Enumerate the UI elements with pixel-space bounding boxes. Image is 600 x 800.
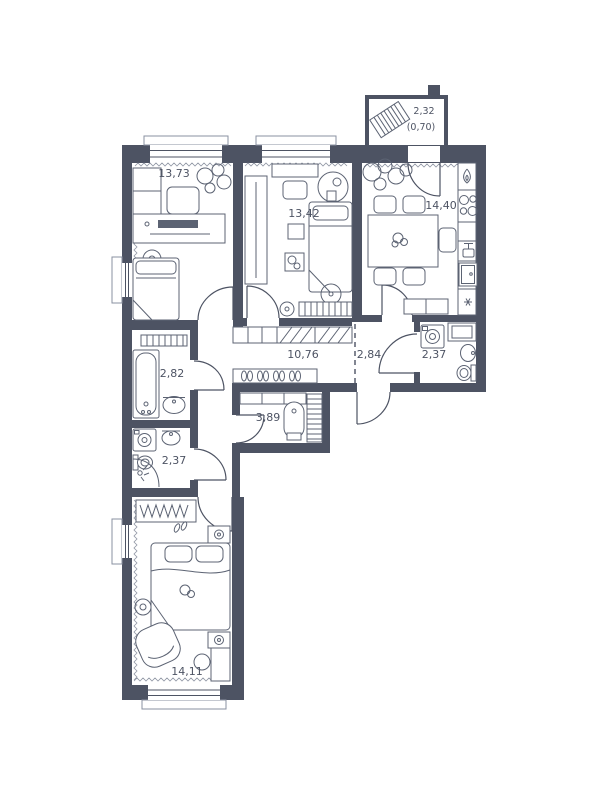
- wall-entry-side: [390, 383, 476, 392]
- corridor: 10,76: [233, 327, 352, 383]
- door-bathroom-left: [194, 361, 224, 390]
- storage: 3,89: [240, 393, 322, 442]
- washing-machine-icon: [133, 429, 156, 451]
- slippers-icon: [173, 521, 188, 533]
- cabinet-icon: [233, 327, 277, 343]
- door-wc: [194, 449, 226, 480]
- wall-kitchen-bottom: [412, 315, 476, 322]
- door-room1: [198, 287, 233, 320]
- wall-room1-room2: [233, 163, 243, 330]
- wall-room2-bottom: [279, 318, 352, 326]
- wall-corridor-bottom: [232, 383, 357, 392]
- side-table-icon: [285, 253, 304, 271]
- zigzag-line: [134, 500, 137, 680]
- nightstand-icon: [288, 224, 304, 239]
- floor-plan: 13,73 13,42: [0, 0, 600, 800]
- door-balcony: [408, 163, 440, 196]
- plant-icon: [197, 164, 231, 193]
- kitchen: 14,40: [363, 159, 477, 315]
- hallway: 2,84: [357, 348, 382, 361]
- area-label-bedroom: 14,11: [171, 665, 203, 678]
- balcony: 2,32 (0,70): [370, 102, 436, 138]
- window-sill: [142, 700, 226, 709]
- boiler-icon: [284, 402, 304, 440]
- wall-storage-right: [322, 392, 330, 443]
- wall-left: [122, 163, 132, 685]
- nightstand-icon: [208, 526, 230, 543]
- bathtub-icon: [133, 350, 159, 418]
- closet-rod-icon: [299, 302, 352, 316]
- bed-icon: [133, 258, 179, 320]
- chair-icon: [403, 268, 425, 285]
- pillow-icon: [136, 261, 176, 274]
- balcony-bench-icon: [370, 102, 410, 138]
- balcony-wall-left: [365, 95, 369, 145]
- pillow-icon: [165, 546, 192, 562]
- sink-icon: [163, 397, 185, 414]
- window-sill: [144, 136, 228, 145]
- zigzag-line: [364, 164, 472, 167]
- sink-icon: [461, 345, 476, 362]
- area-label-kitchen: 14,40: [425, 199, 457, 212]
- wall-bath-wc: [132, 420, 198, 428]
- shoe-shelf-icon: [233, 369, 317, 383]
- towel-radiator-icon: [141, 335, 187, 346]
- door-bathroom-right: [379, 334, 417, 373]
- bathroom-left: 2,82: [133, 335, 187, 418]
- bed-icon: [151, 543, 230, 630]
- chair-icon: [403, 196, 425, 213]
- wall-storage-bottom: [232, 443, 330, 453]
- wall-room1-bottom: [132, 320, 198, 330]
- monitor-icon: [158, 220, 198, 228]
- chair-icon: [374, 268, 396, 285]
- coat-rack-icon: [136, 500, 196, 522]
- area-label-bathroom-right: 2,37: [422, 348, 447, 361]
- ceiling-light-icon: [280, 302, 294, 316]
- balcony-wall-right: [444, 95, 448, 145]
- washing-machine-icon: [421, 325, 444, 348]
- plant-icon: [363, 159, 412, 190]
- chair-icon: [167, 187, 199, 214]
- hanging-chair-icon: [318, 172, 348, 202]
- ladder-icon: [307, 394, 322, 442]
- area-label-storage: 3,89: [256, 411, 281, 424]
- cabinet-icon: [404, 299, 448, 314]
- window-sill: [112, 257, 122, 303]
- ceiling-light-icon: [135, 599, 151, 615]
- area-label-hallway: 2,84: [357, 348, 382, 361]
- wall-bedroom-right: [232, 497, 244, 685]
- area-label-room2: 13,42: [288, 207, 320, 220]
- kitchen-counter: [458, 163, 476, 315]
- bedroom: 14,11: [132, 500, 230, 681]
- chair-icon: [439, 228, 456, 252]
- room-13-73: 13,73: [133, 164, 231, 320]
- window-sill: [112, 519, 122, 564]
- cabinet-icon: [448, 323, 476, 341]
- area-label-balcony: 2,32: [413, 106, 434, 117]
- window-sill: [256, 136, 336, 145]
- desk-icon: [133, 214, 225, 243]
- nightstand-icon: [208, 632, 230, 648]
- stool-icon: [283, 181, 307, 199]
- wall-room2-kitchen: [352, 163, 362, 322]
- area-label-corridor: 10,76: [287, 348, 319, 361]
- area-label-bathroom-left: 2,82: [160, 367, 185, 380]
- balcony-wall-top: [365, 95, 448, 99]
- oven-icon: [459, 263, 477, 286]
- toilet-icon: [133, 455, 153, 470]
- chair-icon: [374, 196, 396, 213]
- pillow-icon: [196, 546, 223, 562]
- area-label-balcony-weighted: (0,70): [407, 122, 436, 133]
- dining-table-icon: [368, 215, 438, 267]
- wall-wc-bottom: [132, 488, 198, 497]
- toilet-icon: [457, 365, 476, 381]
- area-label-wc: 2,37: [162, 454, 187, 467]
- door-entry: [357, 392, 390, 424]
- sink-icon: [162, 431, 180, 445]
- door-room2: [247, 286, 279, 318]
- bathroom-right: 2,37: [421, 323, 476, 381]
- shoe-cabinet-icon: [277, 327, 352, 343]
- wc: 2,37: [133, 429, 186, 487]
- area-label-room1: 13,73: [158, 167, 190, 180]
- dresser-icon: [272, 164, 318, 177]
- room-13-42: 13,42: [245, 164, 352, 316]
